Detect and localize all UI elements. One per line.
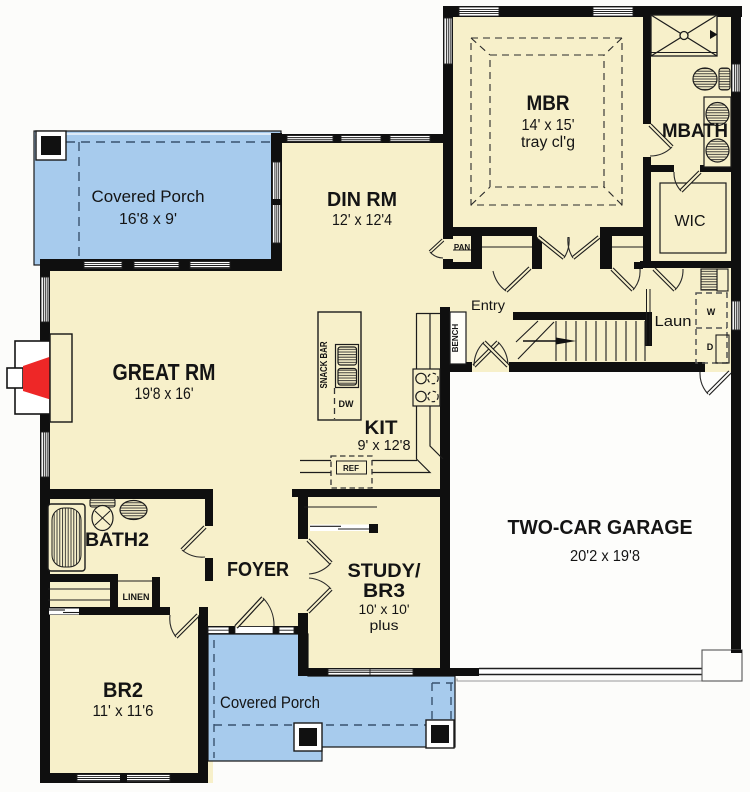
svg-text:Entry: Entry xyxy=(471,297,505,313)
svg-text:GREAT RM: GREAT RM xyxy=(113,359,216,385)
svg-text:BR2: BR2 xyxy=(103,679,143,702)
svg-text:FOYER: FOYER xyxy=(227,559,289,581)
svg-text:Laun: Laun xyxy=(655,313,692,330)
svg-text:plus: plus xyxy=(370,617,399,633)
svg-text:REF: REF xyxy=(343,464,359,473)
svg-text:14' x 15': 14' x 15' xyxy=(522,117,575,134)
svg-text:DW: DW xyxy=(339,399,354,409)
svg-text:20'2 x 19'8: 20'2 x 19'8 xyxy=(570,548,640,565)
svg-text:12' x 12'4: 12' x 12'4 xyxy=(332,212,392,229)
svg-text:MBATH: MBATH xyxy=(662,121,728,142)
svg-text:DIN RM: DIN RM xyxy=(327,189,397,211)
svg-text:BR3: BR3 xyxy=(363,581,405,602)
svg-text:11' x 11'6: 11' x 11'6 xyxy=(93,703,154,720)
svg-text:D: D xyxy=(707,342,714,352)
svg-text:tray cl'g: tray cl'g xyxy=(521,134,575,151)
svg-text:BENCH: BENCH xyxy=(451,324,460,353)
svg-text:BATH2: BATH2 xyxy=(85,530,149,551)
svg-text:PAN: PAN xyxy=(454,243,471,252)
svg-text:MBR: MBR xyxy=(527,92,570,115)
svg-text:Covered Porch: Covered Porch xyxy=(92,187,205,206)
svg-text:W: W xyxy=(707,307,716,317)
svg-text:KIT: KIT xyxy=(365,418,398,439)
svg-text:Covered Porch: Covered Porch xyxy=(220,694,320,712)
svg-text:16'8 x 9': 16'8 x 9' xyxy=(119,211,177,228)
svg-text:TWO-CAR GARAGE: TWO-CAR GARAGE xyxy=(508,516,693,539)
svg-text:10' x 10': 10' x 10' xyxy=(359,601,410,617)
svg-text:LINEN: LINEN xyxy=(123,592,150,602)
svg-text:19'8 x 16': 19'8 x 16' xyxy=(135,384,194,403)
svg-text:STUDY/: STUDY/ xyxy=(348,561,422,582)
svg-text:SNACK BAR: SNACK BAR xyxy=(319,341,330,389)
svg-text:WIC: WIC xyxy=(674,213,705,230)
svg-text:9' x 12'8: 9' x 12'8 xyxy=(358,437,411,454)
